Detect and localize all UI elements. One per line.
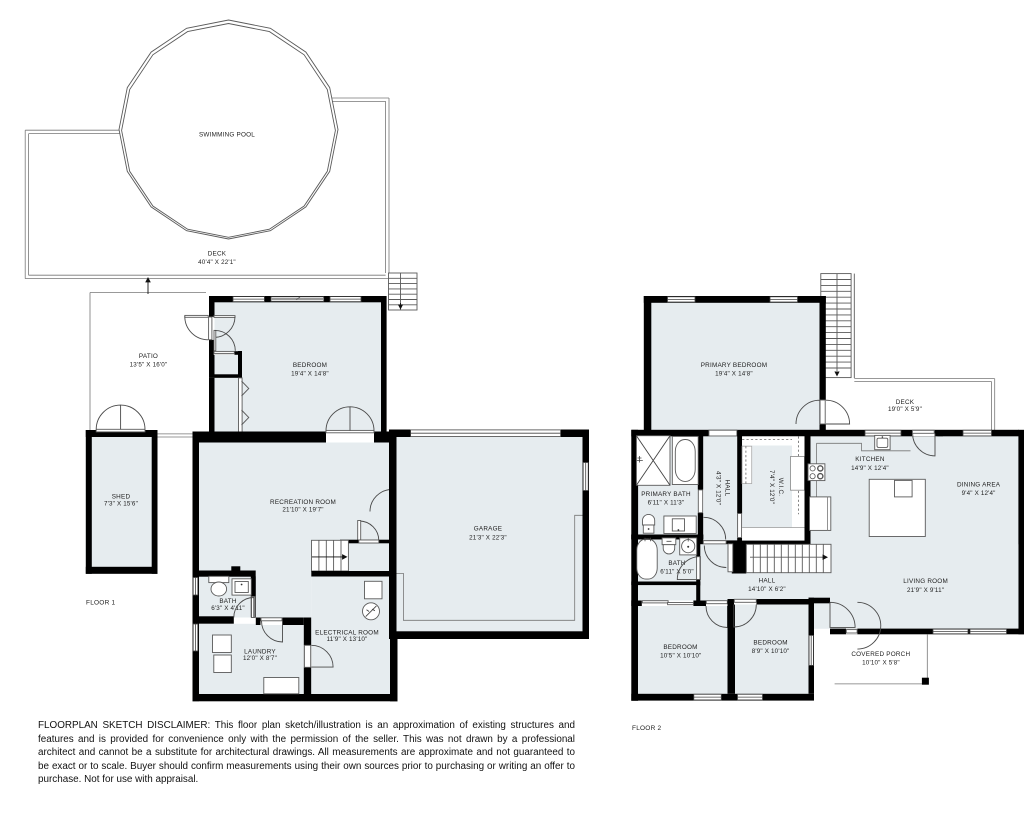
svg-text:12'0" X 8'7": 12'0" X 8'7"	[243, 655, 277, 662]
svg-text:PRIMARY BATH: PRIMARY BATH	[641, 491, 691, 498]
svg-text:21'9" X 9'11": 21'9" X 9'11"	[907, 587, 944, 594]
svg-text:KITCHEN: KITCHEN	[855, 456, 885, 463]
svg-text:11'9" X 13'10": 11'9" X 13'10"	[327, 636, 368, 643]
svg-text:DINING AREA: DINING AREA	[957, 482, 1001, 489]
svg-text:SWIMMING POOL: SWIMMING POOL	[199, 132, 255, 139]
svg-text:RECREATION ROOM: RECREATION ROOM	[270, 499, 336, 506]
svg-text:DECK: DECK	[896, 399, 915, 406]
svg-text:FLOOR 2: FLOOR 2	[632, 725, 662, 732]
svg-text:LIVING ROOM: LIVING ROOM	[903, 578, 948, 585]
svg-text:19'4" X 14'8": 19'4" X 14'8"	[715, 371, 753, 378]
svg-text:8'9" X 10'10": 8'9" X 10'10"	[752, 648, 790, 655]
svg-text:BEDROOM: BEDROOM	[663, 644, 697, 651]
svg-text:7'3" X 15'6": 7'3" X 15'6"	[104, 501, 138, 508]
svg-text:19'4" X 14'8": 19'4" X 14'8"	[291, 371, 329, 378]
svg-text:HALL: HALL	[759, 578, 776, 585]
svg-text:6'11" X 5'0": 6'11" X 5'0"	[660, 568, 694, 575]
svg-text:FLOOR 1: FLOOR 1	[86, 600, 116, 607]
svg-text:W.I.C.: W.I.C.	[777, 478, 784, 497]
svg-text:GARAGE: GARAGE	[474, 526, 502, 533]
svg-text:4'3" X 12'0": 4'3" X 12'0"	[715, 471, 722, 505]
svg-text:7'4" X 12'0": 7'4" X 12'0"	[768, 470, 775, 504]
svg-text:BATH: BATH	[219, 598, 237, 605]
svg-text:21'3" X 22'3": 21'3" X 22'3"	[469, 535, 507, 542]
svg-text:10'10" X 5'8": 10'10" X 5'8"	[862, 660, 900, 667]
svg-text:10'5" X 10'10": 10'5" X 10'10"	[660, 652, 701, 659]
svg-text:BATH: BATH	[668, 560, 686, 567]
svg-text:40'4" X 22'1": 40'4" X 22'1"	[198, 259, 236, 266]
svg-text:HALL: HALL	[724, 480, 731, 497]
svg-text:6'3" X 4'11": 6'3" X 4'11"	[211, 605, 245, 612]
svg-text:9'4" X 12'4": 9'4" X 12'4"	[962, 490, 996, 497]
svg-text:6'11" X 11'3": 6'11" X 11'3"	[648, 499, 685, 506]
svg-text:14'9" X 12'4": 14'9" X 12'4"	[851, 465, 889, 472]
svg-text:14'10" X 6'2": 14'10" X 6'2"	[748, 586, 786, 593]
svg-text:SHED: SHED	[112, 494, 131, 501]
svg-text:DECK: DECK	[208, 251, 227, 258]
svg-text:PRIMARY BEDROOM: PRIMARY BEDROOM	[701, 362, 768, 369]
svg-text:PATIO: PATIO	[139, 353, 158, 360]
svg-text:COVERED PORCH: COVERED PORCH	[851, 651, 910, 658]
svg-text:21'10" X 19'7": 21'10" X 19'7"	[282, 506, 323, 513]
svg-text:19'0" X 5'9": 19'0" X 5'9"	[888, 406, 922, 413]
svg-text:BEDROOM: BEDROOM	[753, 640, 787, 647]
svg-text:BEDROOM: BEDROOM	[293, 362, 327, 369]
svg-text:13'5" X 16'0": 13'5" X 16'0"	[130, 362, 168, 369]
